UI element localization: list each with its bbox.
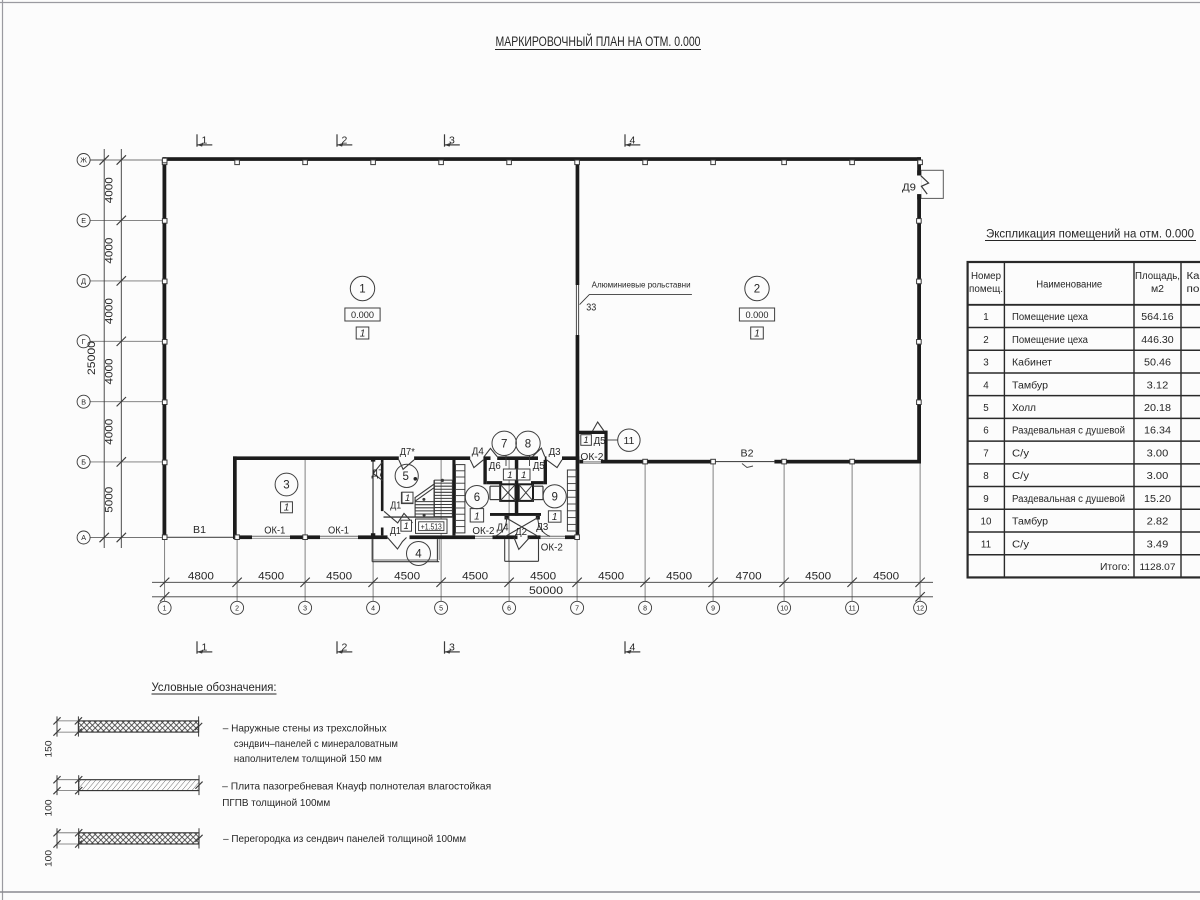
svg-text:4000: 4000 <box>104 419 116 445</box>
svg-text:3.00: 3.00 <box>1147 471 1169 482</box>
svg-text:Номер: Номер <box>971 271 1002 282</box>
svg-text:Д5: Д5 <box>594 436 606 447</box>
svg-text:МАРКИРОВОЧНЫЙ ПЛАН НА ОТМ. 0.0: МАРКИРОВОЧНЫЙ ПЛАН НА ОТМ. 0.000 <box>496 34 701 49</box>
svg-text:Д7: Д7 <box>372 469 384 480</box>
svg-text:С/у: С/у <box>1012 471 1029 482</box>
svg-text:4800: 4800 <box>188 571 214 583</box>
svg-text:6: 6 <box>507 605 511 612</box>
svg-text:4000: 4000 <box>104 177 116 203</box>
svg-text:4500: 4500 <box>666 571 692 583</box>
svg-text:4: 4 <box>983 380 989 391</box>
svg-text:1: 1 <box>754 329 760 340</box>
svg-text:6: 6 <box>474 492 480 504</box>
svg-text:Д5: Д5 <box>533 461 545 472</box>
svg-text:сэндвич–панелей с минераловатн: сэндвич–панелей с минераловатным <box>234 739 398 750</box>
svg-text:100: 100 <box>44 850 55 867</box>
svg-text:Е: Е <box>81 216 86 225</box>
svg-text:3: 3 <box>449 642 455 654</box>
svg-text:0.000: 0.000 <box>351 310 374 321</box>
svg-text:3: 3 <box>449 135 455 147</box>
svg-text:Д3: Д3 <box>549 447 561 458</box>
svg-text:100: 100 <box>44 800 55 817</box>
svg-text:ОК-1: ОК-1 <box>264 526 285 537</box>
svg-text:9: 9 <box>711 605 715 612</box>
svg-text:2: 2 <box>983 335 988 346</box>
svg-text:3.49: 3.49 <box>1147 539 1169 550</box>
svg-text:Д2: Д2 <box>515 527 527 538</box>
svg-text:Тамбур: Тамбур <box>1012 517 1049 528</box>
svg-text:Тамбур: Тамбур <box>1012 380 1049 391</box>
svg-text:16.34: 16.34 <box>1144 426 1172 437</box>
svg-text:Д3: Д3 <box>536 522 548 533</box>
svg-text:Д1: Д1 <box>390 526 401 537</box>
svg-text:ОК-2: ОК-2 <box>472 526 494 537</box>
svg-text:4500: 4500 <box>326 571 352 583</box>
svg-text:1: 1 <box>163 605 167 612</box>
svg-text:10: 10 <box>981 517 992 528</box>
svg-text:С/у: С/у <box>1012 448 1029 459</box>
svg-text:Помещение цеха: Помещение цеха <box>1012 335 1089 346</box>
svg-text:– Перегородка из сендвич панел: – Перегородка из сендвич панелей толщино… <box>223 834 466 845</box>
svg-text:– Плита пазогребневая Кнауф по: – Плита пазогребневая Кнауф полнотелая в… <box>222 780 491 792</box>
svg-text:7: 7 <box>983 448 988 459</box>
svg-text:Раздевальная с душевой: Раздевальная с душевой <box>1012 494 1125 505</box>
svg-text:ОК-2: ОК-2 <box>541 543 563 554</box>
svg-text:8: 8 <box>643 605 647 612</box>
svg-text:Алюминиевые рольставни: Алюминиевые рольставни <box>592 279 691 289</box>
svg-text:1: 1 <box>405 493 410 504</box>
svg-text:2: 2 <box>754 284 760 296</box>
svg-text:10: 10 <box>780 605 788 612</box>
svg-text:Д: Д <box>81 277 86 286</box>
svg-text:1: 1 <box>507 470 512 481</box>
svg-text:4000: 4000 <box>104 359 116 385</box>
svg-text:ПГПВ толщиной 100мм: ПГПВ толщиной 100мм <box>222 798 330 809</box>
svg-text:3: 3 <box>283 480 289 492</box>
svg-text:6: 6 <box>983 426 989 437</box>
svg-text:1128.07: 1128.07 <box>1140 562 1176 572</box>
svg-text:В2: В2 <box>741 449 754 460</box>
svg-text:1: 1 <box>359 284 365 296</box>
svg-text:Ка: Ка <box>1187 271 1200 282</box>
svg-text:1: 1 <box>584 435 589 445</box>
svg-text:8: 8 <box>525 438 531 450</box>
svg-text:наполнителем толщиной 150 мм: наполнителем толщиной 150 мм <box>234 754 382 765</box>
svg-text:С/у: С/у <box>1012 539 1029 550</box>
svg-text:33: 33 <box>586 303 596 314</box>
svg-text:2: 2 <box>235 605 239 612</box>
svg-text:5: 5 <box>983 403 989 414</box>
svg-text:1: 1 <box>360 329 366 340</box>
svg-text:1: 1 <box>404 521 409 532</box>
svg-text:4: 4 <box>371 605 375 612</box>
svg-text:Итого:: Итого: <box>1100 562 1130 573</box>
svg-text:Наименование: Наименование <box>1036 280 1103 291</box>
svg-text:1: 1 <box>983 312 988 323</box>
svg-text:1: 1 <box>201 135 207 147</box>
svg-text:3: 3 <box>983 358 989 369</box>
svg-text:Площадь,: Площадь, <box>1135 271 1180 282</box>
svg-text:по: по <box>1187 284 1200 295</box>
svg-text:50.46: 50.46 <box>1144 358 1172 369</box>
svg-text:Д7*: Д7* <box>400 447 415 458</box>
svg-text:м2: м2 <box>1151 284 1164 295</box>
svg-text:Условные обозначения:: Условные обозначения: <box>152 680 277 694</box>
svg-text:Экспликация помещений на отм.: Экспликация помещений на отм. 0.000 <box>986 226 1194 240</box>
svg-text:Ж: Ж <box>80 156 87 165</box>
svg-text:5: 5 <box>439 605 443 612</box>
svg-text:11: 11 <box>623 435 634 447</box>
svg-text:8: 8 <box>983 471 989 482</box>
svg-text:+1.513: +1.513 <box>421 521 442 531</box>
svg-text:Г: Г <box>82 337 86 346</box>
svg-text:4: 4 <box>415 549 422 561</box>
svg-text:Кабинет: Кабинет <box>1012 358 1053 369</box>
svg-text:4500: 4500 <box>394 571 420 583</box>
svg-text:4500: 4500 <box>530 571 556 583</box>
svg-text:15.20: 15.20 <box>1144 494 1172 505</box>
svg-text:3.00: 3.00 <box>1147 448 1169 459</box>
svg-text:В: В <box>81 397 86 406</box>
svg-text:7: 7 <box>575 605 579 612</box>
svg-text:4: 4 <box>629 642 635 654</box>
svg-text:Д6: Д6 <box>489 461 501 472</box>
svg-text:1: 1 <box>284 503 290 514</box>
svg-text:1: 1 <box>474 511 480 522</box>
svg-text:Д9: Д9 <box>902 183 916 194</box>
svg-text:Раздевальная с душевой: Раздевальная с душевой <box>1012 426 1125 437</box>
svg-text:150: 150 <box>43 741 54 758</box>
svg-text:3: 3 <box>303 605 307 612</box>
svg-text:Д4: Д4 <box>472 447 484 458</box>
svg-text:А: А <box>81 533 86 542</box>
svg-text:Холл: Холл <box>1012 403 1036 414</box>
svg-text:4000: 4000 <box>104 298 116 324</box>
svg-text:9: 9 <box>551 491 557 503</box>
svg-text:Д1: Д1 <box>390 501 401 512</box>
svg-text:564.16: 564.16 <box>1141 312 1174 323</box>
svg-text:3.12: 3.12 <box>1147 380 1169 391</box>
svg-text:ОК-1: ОК-1 <box>328 526 349 537</box>
svg-text:4500: 4500 <box>462 571 488 583</box>
svg-text:2.82: 2.82 <box>1147 517 1169 528</box>
svg-text:1: 1 <box>552 512 558 523</box>
svg-text:4500: 4500 <box>873 571 899 583</box>
svg-text:4000: 4000 <box>104 238 116 264</box>
svg-text:4500: 4500 <box>805 571 831 583</box>
svg-text:ОК-2: ОК-2 <box>580 452 603 463</box>
svg-text:Д4: Д4 <box>497 523 509 534</box>
svg-text:5: 5 <box>402 471 408 483</box>
svg-text:446.30: 446.30 <box>1141 335 1174 346</box>
svg-text:В1: В1 <box>193 525 206 536</box>
svg-text:4: 4 <box>629 135 635 147</box>
svg-text:помещ.: помещ. <box>969 284 1003 295</box>
svg-text:2: 2 <box>341 642 347 654</box>
svg-text:1: 1 <box>201 642 207 654</box>
svg-text:0.000: 0.000 <box>746 310 769 321</box>
svg-text:Помещение цеха: Помещение цеха <box>1012 312 1089 323</box>
svg-text:7: 7 <box>501 438 507 450</box>
svg-text:Б: Б <box>81 458 86 467</box>
svg-text:4500: 4500 <box>258 571 284 583</box>
svg-text:2: 2 <box>341 135 347 147</box>
svg-text:9: 9 <box>983 494 988 505</box>
svg-text:4700: 4700 <box>736 571 762 583</box>
svg-text:1: 1 <box>521 470 526 481</box>
svg-text:– Наружные стены из трехслойны: – Наружные стены из трехслойных <box>223 723 387 734</box>
svg-text:20.18: 20.18 <box>1144 403 1172 414</box>
svg-text:11: 11 <box>981 539 991 550</box>
svg-text:12: 12 <box>916 605 924 612</box>
svg-text:11: 11 <box>848 605 855 612</box>
svg-text:5000: 5000 <box>104 487 116 513</box>
svg-text:4500: 4500 <box>598 571 624 583</box>
svg-text:50000: 50000 <box>529 585 563 597</box>
